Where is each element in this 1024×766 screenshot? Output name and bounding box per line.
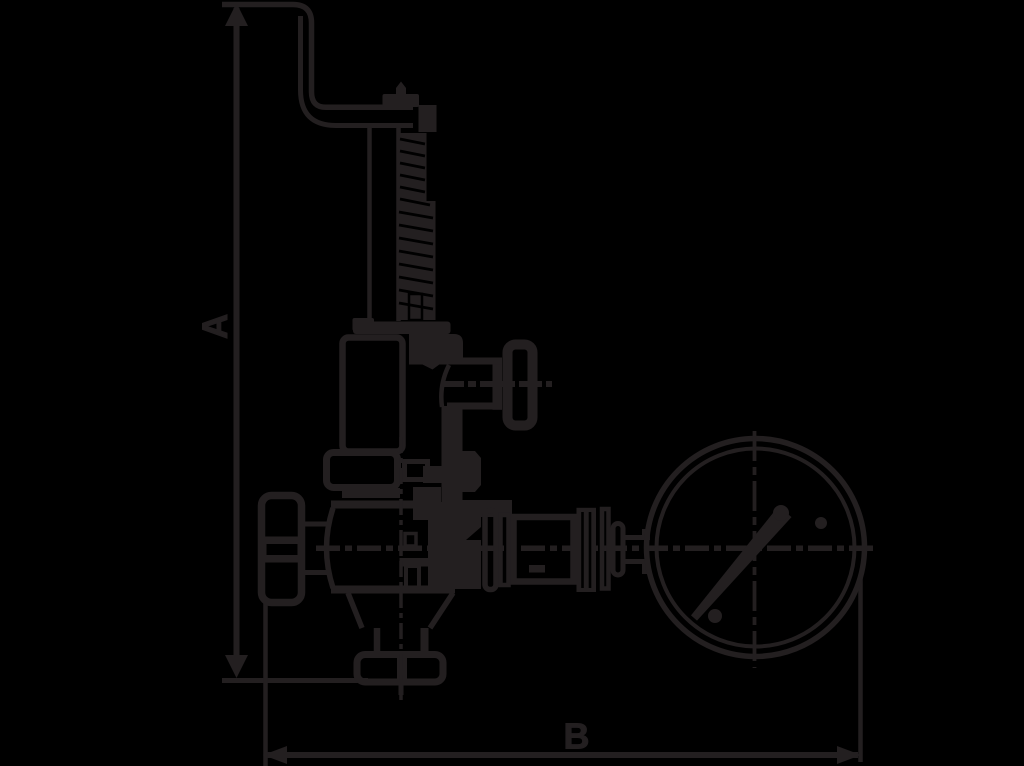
svg-text:A: A (196, 314, 235, 339)
svg-text:B: B (564, 716, 590, 757)
